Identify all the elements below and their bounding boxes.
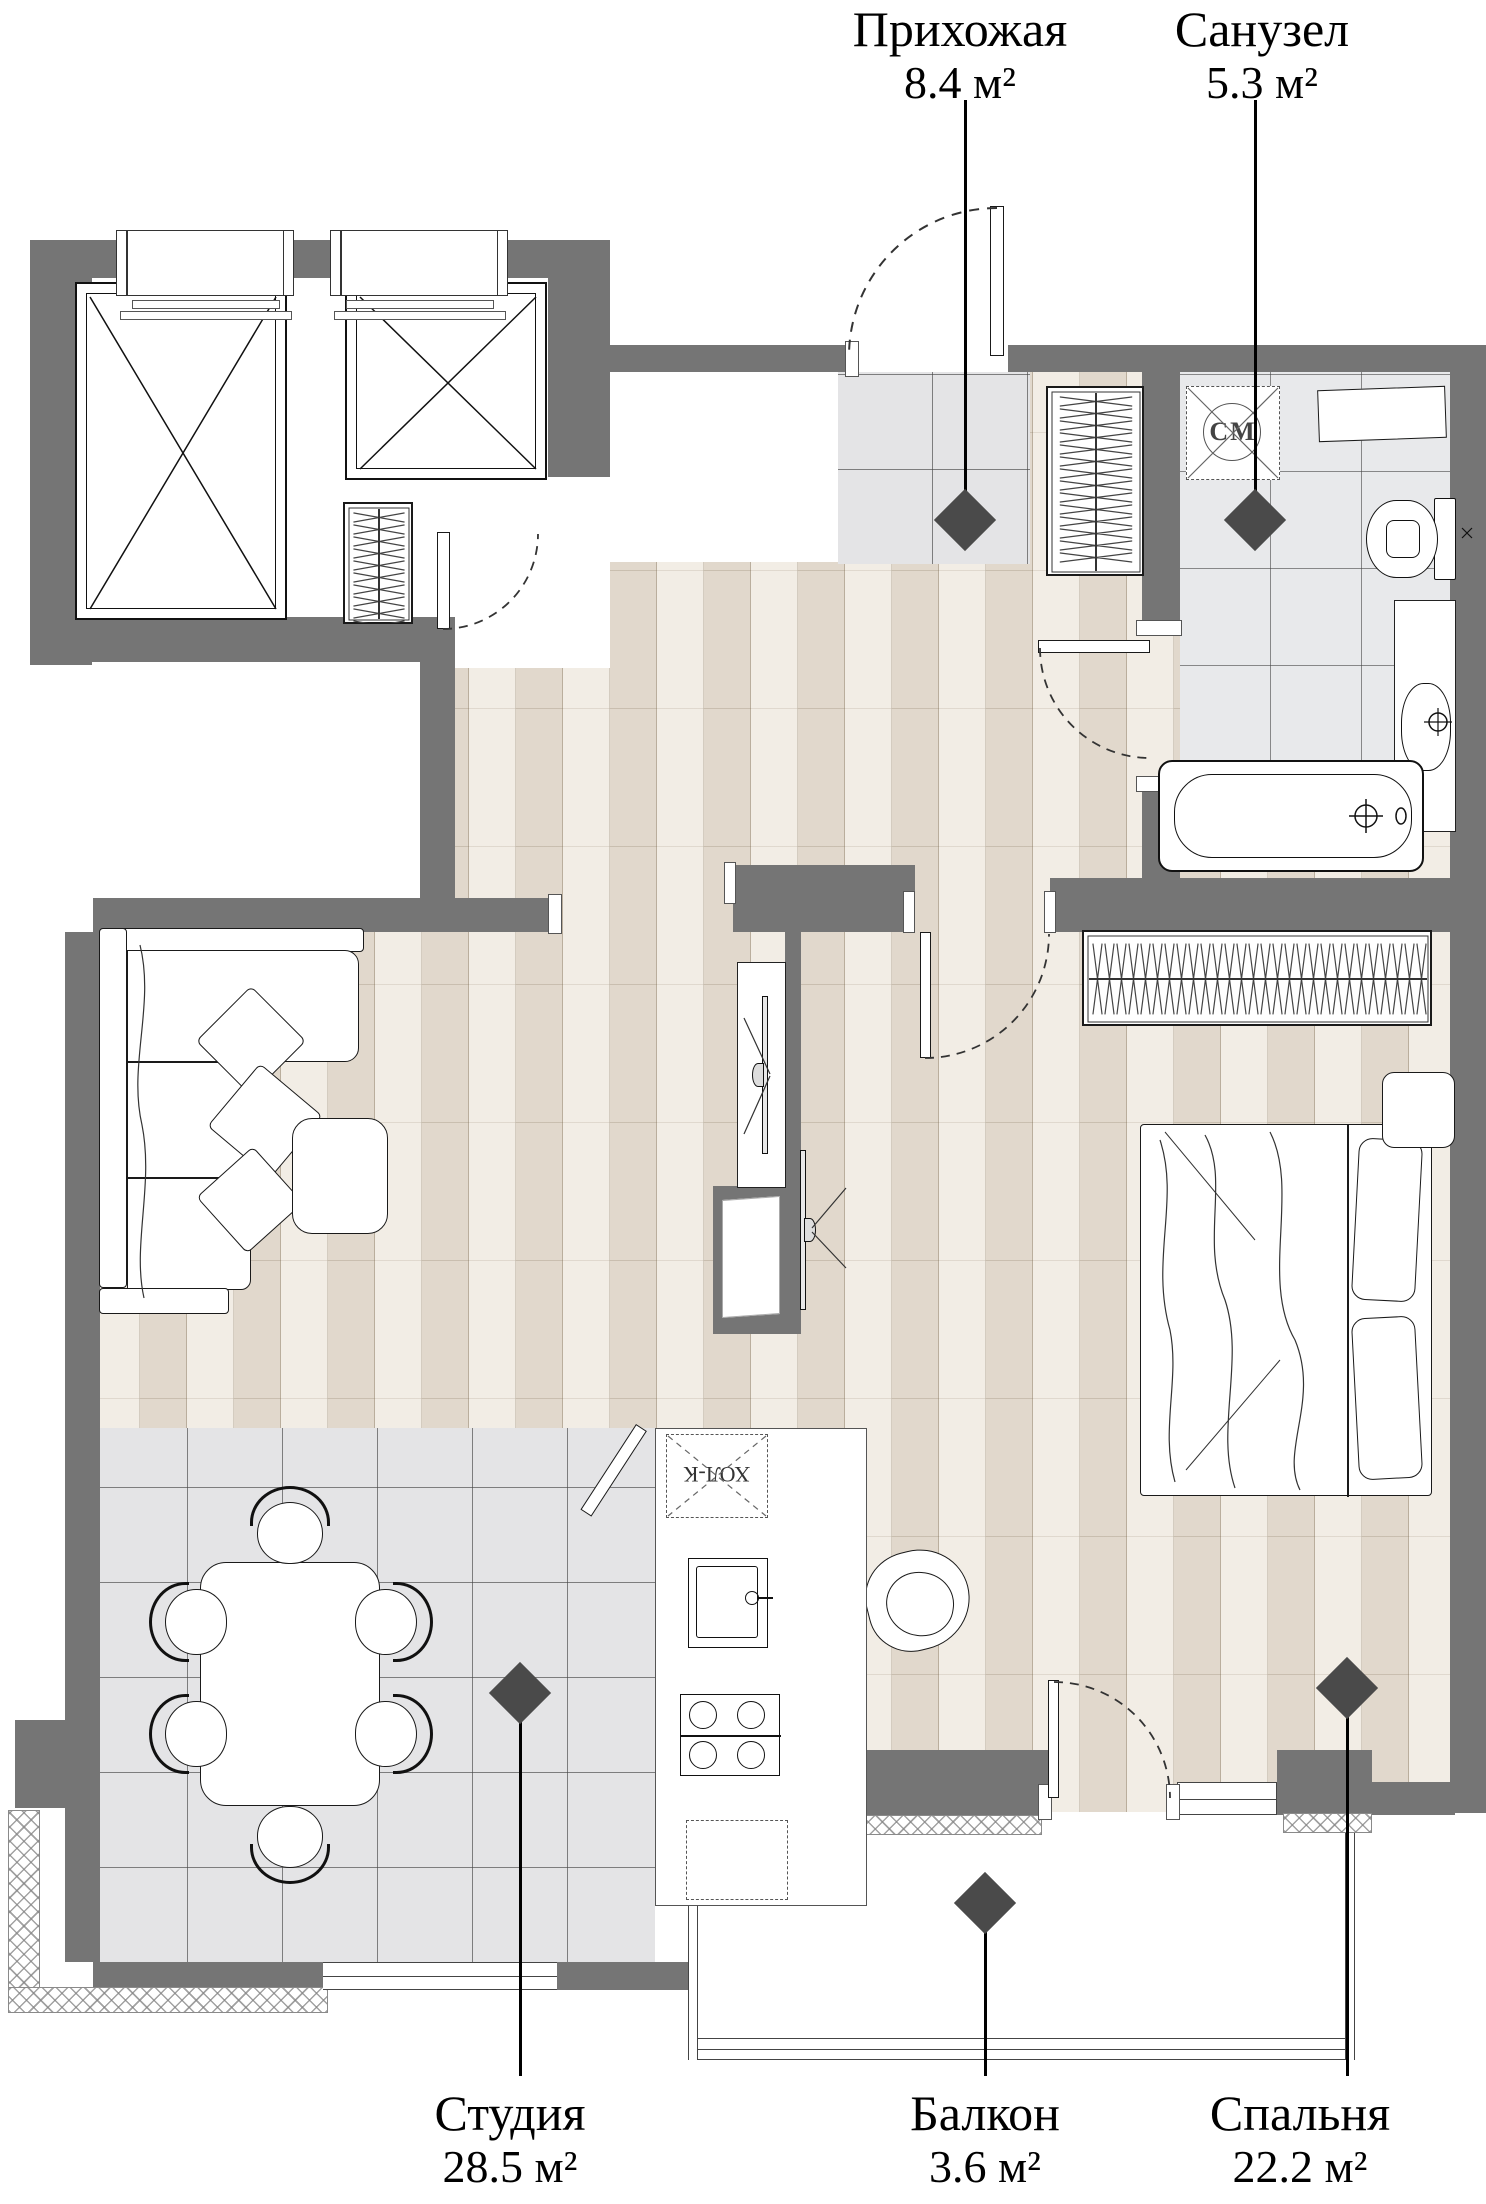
dining-chair-top [247,1484,333,1568]
bed-pillow-top [1351,1137,1423,1302]
parapet-sw-horizontal [8,1987,328,2013]
lobby-area-lower [93,662,420,898]
leader-studio [519,1694,522,2076]
wall-vestibule-west [420,617,455,898]
elevator-door-sill-left-2 [120,311,292,320]
stove [680,1694,780,1776]
sofa-back-top [112,928,364,952]
corridor-white-strip [610,372,838,562]
bed [1140,1124,1432,1496]
coffee-table [292,1118,388,1234]
balcony-door-jamb-right [1166,1784,1180,1820]
bedroom-door-leaf [920,932,931,1058]
label-studio: Студия 28.5 м² [310,2086,710,2194]
nightstand [1382,1072,1455,1148]
wall-bedroom-south-east [1277,1750,1372,1815]
entry-door-leaf [990,206,1004,356]
toilet [1364,494,1458,584]
bedroom-door-jamb-left [903,891,915,933]
tv-living [758,996,768,1154]
tv-corridor [800,1150,810,1310]
floor-plan: СМ ХОЛ-К [0,0,1486,2204]
lobby-closet [343,502,413,624]
washing-machine-label: СМ [1187,417,1279,447]
balcony-door-leaf [1048,1680,1059,1798]
wall-entry-right-bath-top [1008,345,1453,372]
parapet-balcony-left [850,1815,1042,1835]
leader-bedroom [1346,1690,1349,2076]
dining-chair-right-2 [351,1691,435,1777]
dining-chair-left-1 [147,1579,231,1665]
elevator-door-sill-left-1 [132,300,280,309]
bed-pillow-bottom [1351,1315,1423,1480]
leader-bathroom [1254,100,1257,520]
sofa-armrest [99,1288,229,1314]
balcony-glazing-bottom [697,2038,1347,2060]
entry-door-jamb [845,341,859,377]
wall-t-segment [733,865,915,932]
elevator-door-sill-right-2 [334,311,506,320]
refrigerator-label: ХОЛ-К [667,1461,767,1487]
bedroom-door-jamb-right [1044,891,1056,933]
bathroom-door-jamb-top [1136,620,1182,636]
label-bedroom: Спальня 22.2 м² [1115,2086,1485,2194]
wall-corridor-south [850,1750,1050,1815]
bedroom-wardrobe [1082,930,1432,1026]
vestibule-door-leaf [437,532,450,629]
armchair [866,1550,970,1650]
parapet-balcony-right [1283,1813,1372,1833]
bathroom-shelf [1317,386,1447,442]
refrigerator: ХОЛ-К [666,1434,768,1518]
label-bathroom-area: 5.3 м² [1062,57,1462,110]
wall-bathroom-west-upper [1142,372,1180,622]
wall-west-step [15,1720,65,1808]
dining-chair-right-1 [351,1579,435,1665]
bathroom-door-leaf [1038,640,1150,653]
elevator-door-right [330,230,508,296]
leader-hallway [964,100,967,520]
wall-studio-south-left [93,1962,323,1990]
bedroom-balcony-window [1177,1782,1277,1815]
label-studio-area: 28.5 м² [310,2141,710,2194]
sofa-back-left [99,928,127,1288]
dining-chair-left-2 [147,1691,231,1777]
wall-lobby-right [548,240,610,477]
label-bedroom-area: 22.2 м² [1115,2141,1485,2194]
label-studio-name: Студия [310,2086,710,2141]
bathtub [1158,760,1424,872]
label-bedroom-name: Спальня [1115,2086,1485,2141]
wall-studio-south-right [557,1962,697,1990]
wall-living-top [93,898,560,932]
elevator-door-sill-right-1 [346,300,494,309]
wall-west-lower [65,932,100,1962]
label-bathroom: Санузел 5.3 м² [1062,2,1462,110]
living-opening-jamb [548,894,562,934]
t-wall-west-jamb [724,862,736,904]
hallway-closet [1046,386,1144,576]
wall-tv-stem [785,930,801,1192]
alcove-panel [722,1196,780,1318]
parapet-sw-vertical [8,1810,40,2012]
elevator-door-left [116,230,294,296]
label-bathroom-name: Санузел [1062,2,1462,57]
kitchen-sink [688,1558,768,1648]
wall-bedroom-se-corner [1370,1782,1455,1815]
washing-machine: СМ [1186,386,1280,480]
entry-door-arc [849,208,997,356]
dishwasher [686,1820,788,1900]
dining-chair-bottom [247,1802,333,1886]
wall-bathroom-bedroom [1050,878,1450,932]
wall-entry-left [610,345,845,372]
elevator-shaft-left [75,282,287,620]
hallway-tile-floor [838,372,1030,564]
